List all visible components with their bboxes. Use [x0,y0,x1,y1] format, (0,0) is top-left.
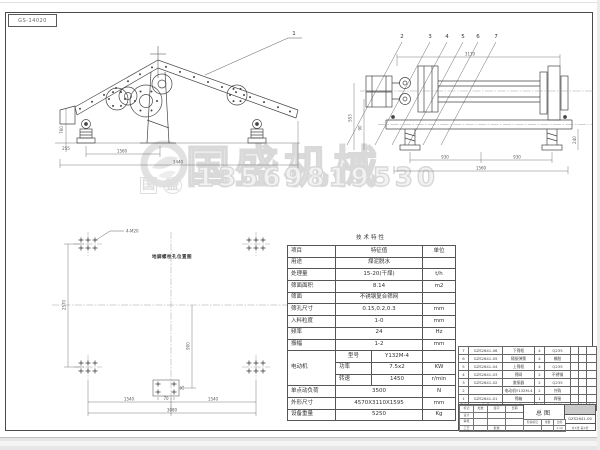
end-view [347,42,594,174]
part-callout: 1 [292,31,296,37]
table-cell: Y132M-4 [372,351,423,363]
table-cell: 批准 [488,425,506,432]
table-row: 设计 [460,412,524,419]
table-cell: 入料粒度 [288,316,336,328]
table-cell: GZS2641-01 [469,394,503,402]
table-cell: 4 [535,354,545,362]
table-cell: 5 [459,362,469,370]
table-cell: Q235 [545,362,571,370]
table-cell [571,378,579,386]
part-callout: 3 [428,34,432,40]
bom-items: 7GZS2641-06下筛框4Q2356GZS2641-05隔振弹簧4橡胶5GZ… [459,347,597,403]
table-row: 2电动机Y132M-42外购 [459,386,597,394]
table-cell: 签字 [488,406,506,413]
table-cell [474,425,488,432]
table-cell [469,386,503,394]
table-cell: 下筛框 [503,347,535,355]
table-cell: 15-20(干煤) [336,269,423,281]
table-cell [423,351,456,363]
table-cell [579,354,587,362]
table-cell [587,386,597,394]
part-callout: 7 [494,34,498,40]
table-row: 电动机型号Y132M-4 [288,351,456,363]
table-cell: 3 [459,378,469,386]
table-cell: 2 [535,386,545,394]
table-cell [524,425,542,431]
table-cell: 4570X3110X1595 [336,397,423,409]
table-cell: 日期 [506,406,524,413]
table-cell: 电动机 [288,351,336,386]
table-row: 1GZS2641-01筛箱1焊接 [459,394,597,402]
table-row: 处理量15-20(干煤)t/h [288,269,456,281]
side-view [55,38,302,168]
table-cell: 单点动负荷 [288,386,336,398]
table-cell: 1 [459,394,469,402]
dim-label: 553 [348,114,353,122]
drawing-title: 总图 [523,405,565,419]
table-cell: 4 [459,370,469,378]
table-cell: 7 [459,347,469,355]
table-cell: 型号 [336,351,372,363]
table-row: 审核 [460,419,524,426]
table-cell [587,362,597,370]
table-cell [506,419,524,426]
table-cell [587,378,597,386]
dim-label: 900 [186,342,191,350]
table-cell: 振幅 [288,339,336,351]
dim-label: 930 [441,155,449,160]
table-cell [474,419,488,426]
dim-label: 1560 [117,149,128,154]
table-row: 入料粒度1-0mm [288,316,456,328]
table-cell: 3500 [336,386,423,398]
table-cell: t/h [423,269,456,281]
title-block-stage-grid: 阶段标记重量比例1:10 [523,419,566,432]
table-cell: 不锈钢复合筛网 [336,292,423,304]
table-cell: m2 [423,281,456,293]
table-cell: 2 [459,386,469,394]
table-cell [571,386,579,394]
table-cell [423,292,456,304]
table-row: 用途煤泥脱水 [288,257,456,269]
drawing-number: GZS2641-00 [565,414,595,424]
table-row: 设备重量5250Kg [288,409,456,421]
table-cell: 外购 [545,386,571,394]
table-cell [571,362,579,370]
table-cell: Q235 [545,347,571,355]
table-cell: 24 [336,327,423,339]
drawing-canvas: GS-14020 国盛 国盛机械 13569819530 [0,0,600,450]
table-row: 4GZS2641-03筛网2不锈钢 [459,370,597,378]
dim-label: 760 [59,126,64,134]
dim-label: 3080 [167,408,178,413]
table-cell: r/min [423,374,456,386]
table-cell: 煤泥脱水 [336,257,423,269]
table-cell: 8.14 [336,281,423,293]
table-cell: 2 [535,370,545,378]
table-cell: 4 [535,362,545,370]
table-cell: GZS2641-05 [469,354,503,362]
table-row: 1:10 [524,425,566,431]
table-cell: 筛面 [288,292,336,304]
dim-label: 90 [358,125,363,131]
table-cell: 设计 [460,412,474,419]
table-cell: 上筛框 [503,362,535,370]
table-cell [579,370,587,378]
table-cell [571,347,579,355]
table-cell: 7.5x2 [372,362,423,374]
table-cell: 特征值 [336,246,423,258]
table-cell: 外形尺寸 [288,397,336,409]
dim-label: 255 [62,146,70,151]
table-cell: mm [423,397,456,409]
table-cell [571,394,579,402]
table-cell: GZS2641-03 [469,370,503,378]
table-cell: 1-2 [336,339,423,351]
dim-label: 70 [163,396,169,401]
table-cell: 审核 [460,419,474,426]
dim-label: 1540 [208,397,219,402]
table-cell: 电动机Y132M-4 [503,386,535,394]
table-cell: 标记 [460,406,474,413]
table-row: 标记处数签字日期 [460,406,524,413]
table-cell [579,394,587,402]
table-cell: 频率 [288,327,336,339]
table-cell: 不锈钢 [545,370,571,378]
table-row: 筛孔尺寸0.15,0.2,0.3mm [288,304,456,316]
table-row: 工艺批准 [460,425,524,432]
table-cell: 1-0 [336,316,423,328]
table-cell: GZS2641-06 [469,347,503,355]
table-row: 频率24Hz [288,327,456,339]
table-cell [571,354,579,362]
table-cell: 转速 [336,374,372,386]
dim-label: 240 [572,136,577,144]
spec-table-title: 技术特性 [287,233,455,241]
table-row: 筛面面积8.14m2 [288,281,456,293]
table-cell: 功率 [336,362,372,374]
table-cell: 橡胶 [545,354,571,362]
table-cell: 1 [535,394,545,402]
table-cell: Hz [423,327,456,339]
table-row: 项目特征值单位 [288,246,456,258]
bolt-label: 4-M20 [126,229,139,234]
table-cell [579,386,587,394]
plan-view-title: 地脚螺栓孔位置图 [152,253,192,260]
table-cell [488,412,506,419]
table-cell: 用途 [288,257,336,269]
table-cell: 焊接 [545,394,571,402]
bom-table: 7GZS2641-06下筛框4Q2356GZS2641-05隔振弹簧4橡胶5GZ… [458,346,597,411]
spec-table: 项目特征值单位用途煤泥脱水处理量15-20(干煤)t/h筛面面积8.14m2筛面… [287,245,456,421]
table-cell: 5250 [336,409,423,421]
part-callout: 2 [400,34,404,40]
table-cell: 隔振弹簧 [503,354,535,362]
part-callout: 6 [476,34,480,40]
dim-label: 3110 [465,52,476,57]
table-cell: Kg [423,409,456,421]
table-cell [587,394,597,402]
table-cell: KW [423,362,456,374]
sheet-count: 共1张 第1张 [565,424,595,431]
table-row: 3GZS2641-02激振器2Q235 [459,378,597,386]
dim-label: 2570 [62,299,67,310]
table-cell: GZS2641-02 [469,378,503,386]
table-cell: Q235 [545,378,571,386]
table-cell [579,378,587,386]
table-cell [474,412,488,419]
table-cell [587,347,597,355]
title-block-signature-grid: 标记处数签字日期设计审核工艺批准 [459,405,524,432]
table-cell: 筛面面积 [288,281,336,293]
table-cell [506,412,524,419]
table-cell: 激振器 [503,378,535,386]
table-cell: 筛箱 [503,394,535,402]
table-cell [488,419,506,426]
dim-label: 1540 [124,397,135,402]
table-cell: 0.15,0.2,0.3 [336,304,423,316]
table-cell: 2 [535,378,545,386]
table-cell: 4 [535,347,545,355]
table-cell: 设备重量 [288,409,336,421]
part-callout: 5 [461,34,465,40]
table-cell [423,257,456,269]
table-cell: 单位 [423,246,456,258]
table-cell [506,425,524,432]
table-cell: 项目 [288,246,336,258]
dim-label: 3440 [173,160,184,165]
table-cell: 处数 [474,406,488,413]
table-row: 筛面不锈钢复合筛网 [288,292,456,304]
table-cell [542,425,554,431]
table-cell: GZS2641-04 [469,362,503,370]
table-cell: 1450 [372,374,423,386]
table-cell: 处理量 [288,269,336,281]
table-cell [587,370,597,378]
table-cell: 6 [459,354,469,362]
table-row: 外形尺寸4570X3110X1595mm [288,397,456,409]
table-cell [579,362,587,370]
table-row: 7GZS2641-06下筛框4Q235 [459,347,597,355]
table-row: 单点动负荷3500N [288,386,456,398]
table-row: 振幅1-2mm [288,339,456,351]
table-cell: mm [423,304,456,316]
part-callout: 4 [445,34,449,40]
table-cell [571,370,579,378]
table-cell: 1:10 [554,425,566,431]
table-cell: 工艺 [460,425,474,432]
table-row: 6GZS2641-05隔振弹簧4橡胶 [459,354,597,362]
spec-table-body: 项目特征值单位用途煤泥脱水处理量15-20(干煤)t/h筛面面积8.14m2筛面… [288,246,456,421]
table-cell: 筛网 [503,370,535,378]
table-cell [587,354,597,362]
dim-label: 1560 [476,166,487,171]
table-cell: 筛孔尺寸 [288,304,336,316]
table-cell: mm [423,316,456,328]
table-cell: mm [423,339,456,351]
dim-label: 75 [180,385,185,391]
table-cell: N [423,386,456,398]
table-row: 5GZS2641-04上筛框4Q235 [459,362,597,370]
table-cell [579,347,587,355]
title-block: 标记处数签字日期设计审核工艺批准 总图 阶段标记重量比例1:10 GZS2641… [458,404,596,431]
dim-label: 930 [513,155,521,160]
